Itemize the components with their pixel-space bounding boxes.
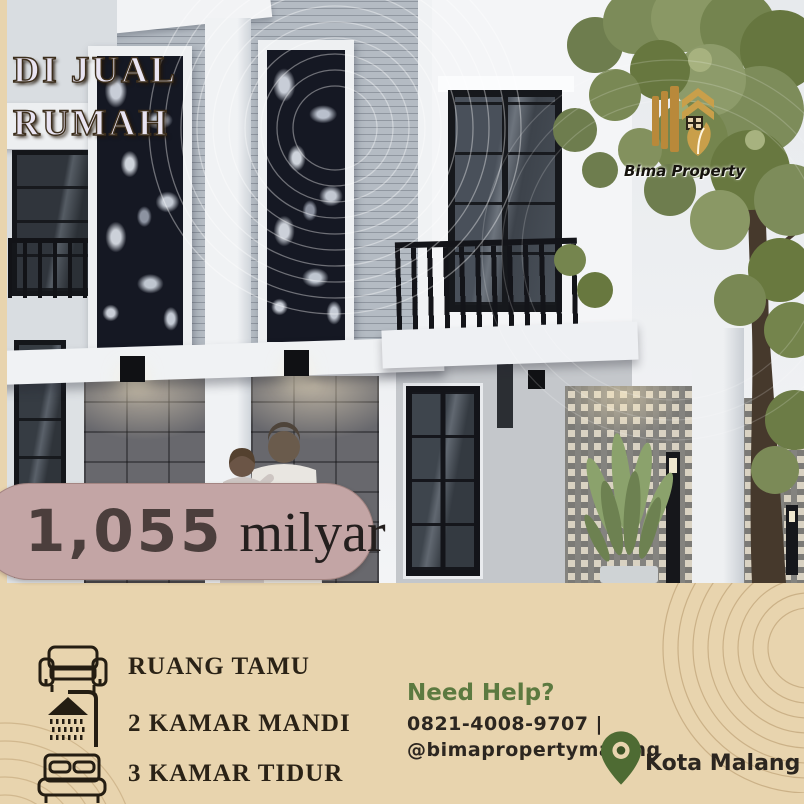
feature-label: 2 KAMAR MANDI: [128, 710, 351, 738]
brand-name: Bima Property: [624, 162, 744, 180]
price-badge: 1,055 milyar: [0, 483, 374, 580]
location-label: Kota Malang: [645, 751, 800, 776]
info-band: RUANG TAMU 2 KAMAR MANDI: [0, 583, 804, 804]
map-pin-icon: [601, 731, 641, 785]
wall-lamp: [284, 350, 309, 376]
sale-title: DI JUAL RUMAH: [13, 44, 178, 150]
floral-pattern: [267, 50, 345, 342]
tree-foliage: [553, 0, 804, 494]
brand-logo: Bima Property: [624, 86, 744, 180]
house-leaf-gold-emblem: [648, 86, 720, 160]
price-amount: 1,055: [25, 484, 223, 579]
floral-panel: [258, 40, 354, 352]
wall-lamp: [528, 370, 545, 389]
shower-icon: [38, 687, 104, 749]
need-help-heading: Need Help?: [407, 680, 554, 706]
price-unit: milyar: [239, 486, 385, 581]
sale-title-line1: DI JUAL: [13, 44, 178, 97]
sale-title-line2: RUMAH: [13, 97, 178, 150]
feature-label: RUANG TAMU: [128, 653, 310, 681]
door-shadow: [497, 360, 513, 428]
bed-icon: [36, 753, 108, 804]
wall-lamp: [120, 356, 145, 382]
ground-window: [406, 386, 480, 576]
feature-label: 3 KAMAR TIDUR: [128, 760, 343, 788]
phone-number: 0821-4008-9707 |: [407, 713, 603, 735]
garden-lamp: [786, 505, 798, 575]
garden-plant: [572, 428, 682, 583]
property-sale-poster: DI JUAL RUMAH: [0, 0, 804, 804]
